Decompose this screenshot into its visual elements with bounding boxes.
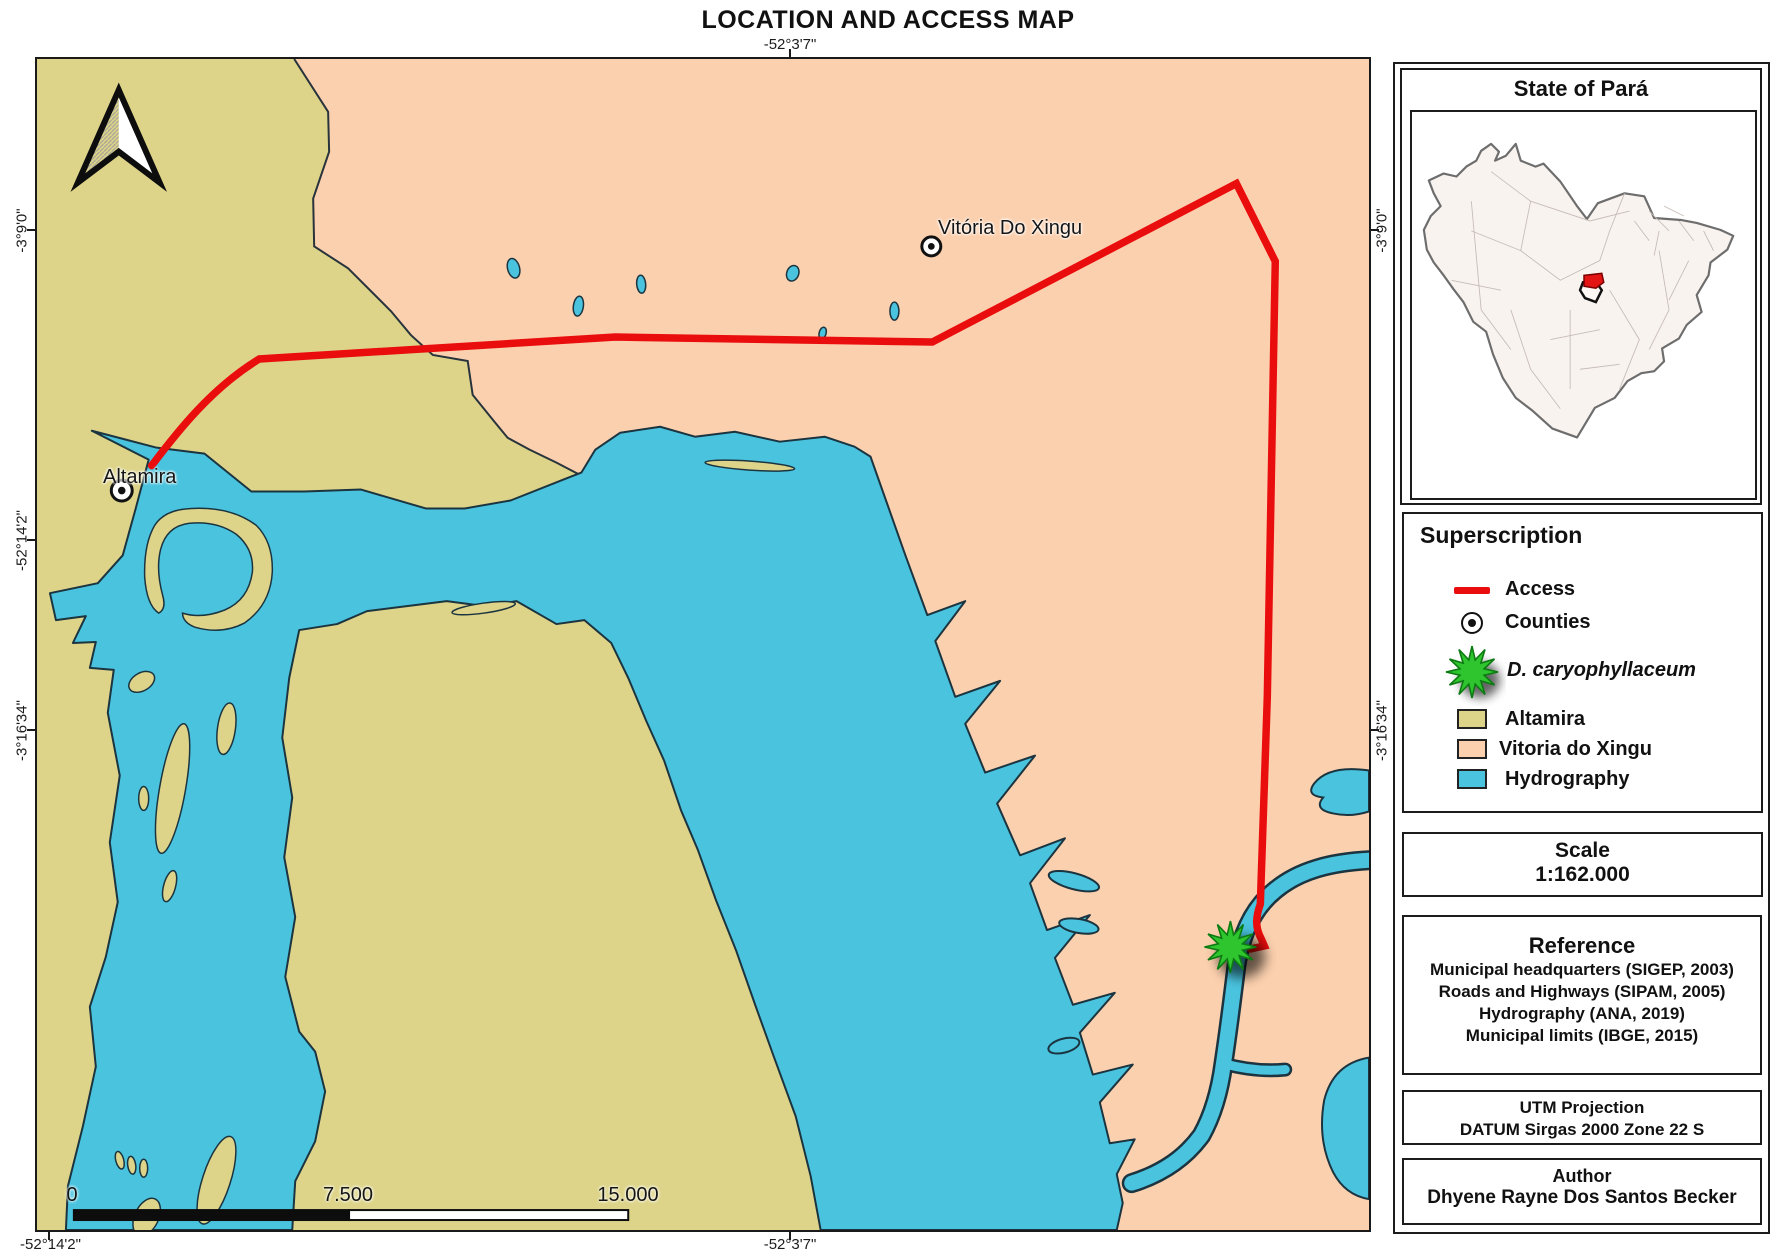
altamira-city-label: Altamira [103, 466, 176, 489]
tick [48, 1232, 50, 1240]
scale-title: Scale [1404, 839, 1761, 863]
tick [27, 539, 35, 541]
reference-line: Municipal limits (IBGE, 2015) [1404, 1025, 1760, 1047]
vitoria-city-label: Vitória Do Xingu [938, 217, 1082, 240]
reference-box: Reference Municipal headquarters (SIGEP,… [1402, 915, 1762, 1075]
legend-altamira-label: Altamira [1505, 708, 1585, 731]
author-name: Dhyene Rayne Dos Santos Becker [1404, 1187, 1760, 1209]
scalebar-max-label: 15.000 [583, 1184, 673, 1207]
tick [27, 729, 35, 731]
altamira-swatch-icon [1457, 709, 1487, 729]
scale-value: 1:162.000 [1404, 863, 1761, 887]
legend-title: Superscription [1420, 522, 1582, 549]
scalebar [74, 1210, 628, 1220]
legend-box: Superscription Access Counties D. caryop… [1402, 512, 1763, 813]
legend-hydrography-label: Hydrography [1505, 768, 1629, 791]
map-canvas [37, 59, 1369, 1230]
vitoria-swatch-icon [1457, 739, 1487, 759]
legend-counties-label: Counties [1505, 611, 1591, 634]
inset-map-frame [1410, 110, 1757, 500]
reference-line: Roads and Highways (SIPAM, 2005) [1404, 981, 1760, 1003]
axis-bottom-left-label: -52°14'2" [3, 1236, 98, 1253]
scalebar-mid-label: 7.500 [303, 1184, 393, 1207]
state-inset-box: State of Pará [1400, 68, 1762, 505]
tick [1371, 229, 1379, 231]
reference-line: Hydrography (ANA, 2019) [1404, 1003, 1760, 1025]
scalebar-zero-label: 0 [27, 1184, 117, 1207]
author-title: Author [1404, 1166, 1760, 1187]
tick [789, 1232, 791, 1240]
scale-box: Scale 1:162.000 [1402, 832, 1763, 897]
species-star-icon [1442, 642, 1506, 706]
para-state-shape [1424, 144, 1733, 438]
projection-line2: DATUM Sirgas 2000 Zone 22 S [1404, 1119, 1760, 1141]
location-access-map-page: { "title": "LOCATION AND ACCESS MAP", "c… [0, 0, 1776, 1256]
legend-vitoria-label: Vitoria do Xingu [1499, 738, 1652, 761]
tick [27, 229, 35, 231]
main-map [35, 57, 1371, 1232]
projection-box: UTM Projection DATUM Sirgas 2000 Zone 22… [1402, 1090, 1762, 1145]
author-box: Author Dhyene Rayne Dos Santos Becker [1402, 1158, 1762, 1225]
tick [1371, 729, 1379, 731]
para-state-map [1412, 112, 1755, 498]
page-title: LOCATION AND ACCESS MAP [0, 6, 1776, 35]
tick [789, 49, 791, 57]
legend-access-label: Access [1505, 578, 1575, 601]
counties-marker-icon [1461, 612, 1483, 634]
legend-species-label: D. caryophyllaceum [1507, 659, 1696, 682]
reference-line: Municipal headquarters (SIGEP, 2003) [1404, 959, 1760, 981]
reference-title: Reference [1404, 933, 1760, 959]
hydrography-swatch-icon [1457, 769, 1487, 789]
inset-title: State of Pará [1402, 70, 1760, 102]
projection-line1: UTM Projection [1404, 1097, 1760, 1119]
access-line-icon [1454, 587, 1490, 594]
